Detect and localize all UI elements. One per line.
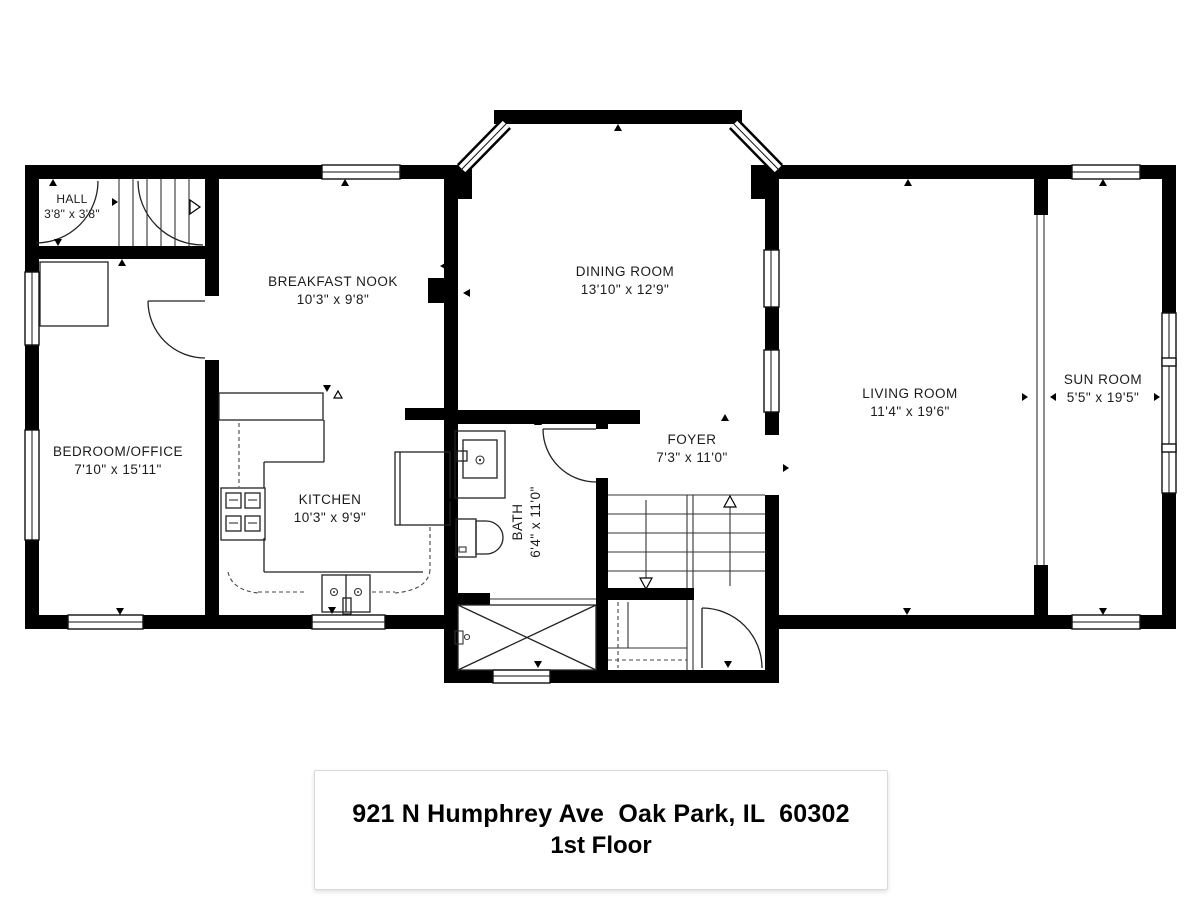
address-card: 921 N Humphrey Ave Oak Park, IL 60302 1s…	[314, 770, 888, 890]
room-dims: 6'4" x 11'0"	[527, 486, 545, 558]
kitchen-counter	[219, 393, 323, 420]
room-name: LIVING ROOM	[862, 385, 958, 403]
room-dims: 13'10" x 12'9"	[576, 281, 675, 299]
window-bedroom-bottom	[68, 615, 143, 629]
room-name: FOYER	[656, 431, 728, 449]
room-label-breakfast-nook: BREAKFAST NOOK 10'3" x 9'8"	[268, 273, 398, 309]
room-dims: 11'4" x 19'6"	[862, 403, 958, 421]
bath-fixtures	[455, 431, 505, 557]
window-sunroom-top	[1072, 165, 1140, 179]
room-label-kitchen: KITCHEN 10'3" x 9'9"	[294, 491, 367, 527]
window-bedroom-left-upper	[25, 272, 39, 345]
stove-icon	[221, 488, 265, 540]
room-label-hall: HALL 3'8" x 3'8"	[44, 192, 100, 222]
room-dims: 10'3" x 9'9"	[294, 509, 367, 527]
refrigerator-icon	[395, 452, 450, 525]
room-label-bedroom-office: BEDROOM/OFFICE 7'10" x 15'11"	[53, 443, 183, 479]
vanity-sink-icon	[455, 431, 505, 498]
window-sunroom-right	[1162, 313, 1176, 493]
room-name: HALL	[44, 192, 100, 207]
room-label-dining-room: DINING ROOM 13'10" x 12'9"	[576, 263, 675, 299]
room-label-living-room: LIVING ROOM 11'4" x 19'6"	[862, 385, 958, 421]
room-dims: 3'8" x 3'8"	[44, 207, 100, 222]
toilet-icon	[456, 519, 503, 557]
room-label-bath: BATH 6'4" x 11'0"	[509, 486, 545, 558]
stairs-direction-arrow-icon	[190, 200, 200, 214]
shower-room	[455, 599, 596, 670]
upper-stairs-door-swing	[138, 181, 203, 245]
cased-opening-dining-living-upper	[764, 250, 779, 307]
room-dims: 5'5" x 19'5"	[1064, 389, 1142, 407]
room-name: DINING ROOM	[576, 263, 675, 281]
entry-door-swing	[702, 608, 762, 668]
cased-opening-dining-living-lower	[764, 350, 779, 412]
upper-stairs	[119, 179, 200, 246]
room-name: BREAKFAST NOOK	[268, 273, 398, 291]
room-dims: 7'10" x 15'11"	[53, 461, 183, 479]
under-stairs-closet	[608, 600, 693, 670]
window-sunroom-bottom	[1072, 615, 1140, 629]
window-breakfast-top	[322, 165, 400, 179]
room-name: BEDROOM/OFFICE	[53, 443, 183, 461]
bath-door-swing	[543, 429, 596, 482]
window-bedroom-left-lower	[25, 430, 39, 540]
room-label-sun-room: SUN ROOM 5'5" x 19'5"	[1064, 371, 1142, 407]
living-sunroom-divider	[1037, 215, 1044, 565]
main-stairs	[608, 495, 765, 589]
room-name: KITCHEN	[294, 491, 367, 509]
bedroom-closet	[40, 262, 108, 326]
stairs-down-arrow-icon	[640, 578, 652, 589]
floor-line: 1st Floor	[550, 832, 651, 860]
room-label-foyer: FOYER 7'3" x 11'0"	[656, 431, 728, 467]
room-dims: 7'3" x 11'0"	[656, 449, 728, 467]
bedroom-door-swing	[148, 301, 205, 358]
stairs-up-arrow-icon	[724, 496, 736, 507]
room-name: BATH	[509, 486, 527, 558]
address-line: 921 N Humphrey Ave Oak Park, IL 60302	[352, 800, 849, 829]
room-name: SUN ROOM	[1064, 371, 1142, 389]
window-shower-bottom	[493, 670, 550, 683]
room-dims: 10'3" x 9'8"	[268, 291, 398, 309]
window-kitchen-bottom	[312, 615, 385, 629]
